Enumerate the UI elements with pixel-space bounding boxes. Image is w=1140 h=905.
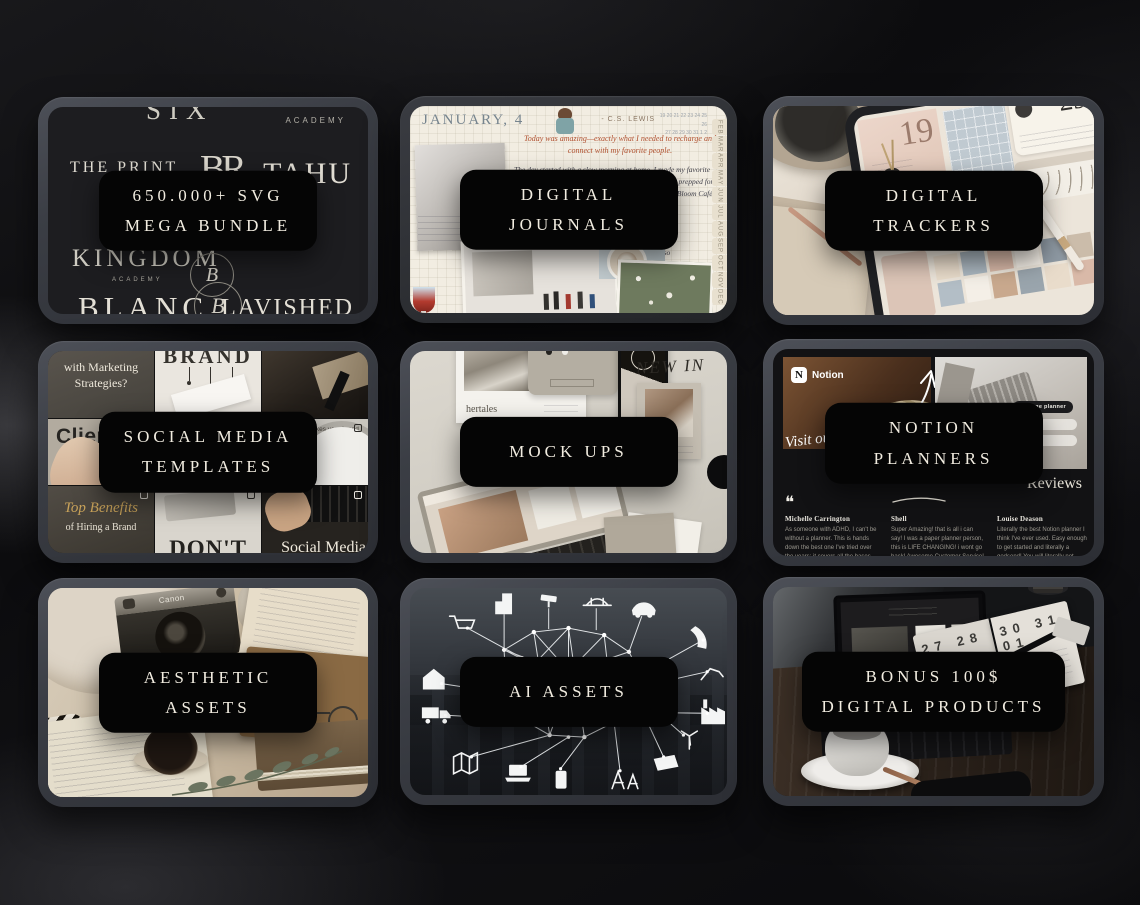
mosaic-tile [960,249,987,276]
camera-shutter-knob [216,588,227,598]
review-card: Michelle Carrington As someone with ADHD… [785,515,879,556]
product-tile-notion-planners: N Notion Visit our Shop 60 page planner … [763,339,1104,566]
mosaic-tile [1017,267,1044,294]
review-text: Literally the best Notion planner I thin… [997,526,1091,556]
journal-photo-wine-glass [413,287,435,313]
journal-figure-body [556,118,574,134]
template-text-dont: DON'T [155,536,261,553]
review-text: As someone with ADHD, I can't be without… [785,526,879,556]
building-icon [495,593,512,614]
card-slot [550,379,594,387]
mindmap-dot [187,381,191,385]
laptop-icon [509,765,527,776]
category-banner: AI ASSETS [460,656,678,726]
webpage-product-card [528,481,576,529]
tracker-cover-number: 19 [897,111,937,154]
review-card: Shell Super Amazing! that is all i can s… [891,515,985,556]
review-text: Super Amazing! that is all i can say! I … [891,526,985,556]
product-tile-digital-trackers: 19 29 [763,96,1104,325]
product-tile-social-media-templates: with Marketing Strategies? BRAND Client … [38,341,378,563]
template-text-brand: BRAND [155,351,261,369]
notion-logo-icon: N [791,367,807,383]
pen-prop [562,351,568,355]
month-tab: MAR [712,136,727,152]
lens-prop [707,455,727,489]
gallery-figure [544,294,550,310]
category-label-line: MOCK UPS [482,437,656,467]
journal-dates-row: 19 20 21 22 23 24 25 26 [655,112,707,129]
gallery-stairs [472,250,533,296]
gallery-figure-red [566,294,572,309]
month-tab-label: OCT [717,255,723,271]
category-label-line: AI ASSETS [482,676,656,706]
journal-intro-text: Today was amazing—exactly what I needed … [522,133,718,158]
digital-products-promo-grid: SIX ACADEMY THE PRINT Avenue BR TAHU KIN… [0,0,1140,905]
product-tile-digital-journals: JANUARY, 4 - C.S. LEWIS 19 20 21 22 23 2… [400,96,737,323]
template-text: with Marketing Strategies? [48,351,154,391]
date-widget: 29 [1007,106,1094,156]
eucalyptus-sprig [168,737,348,797]
category-label-line: DIGITAL PRODUCTS [822,692,1046,722]
solar-panel-icon [654,755,679,771]
category-banner: DIGITAL JOURNALS [460,169,678,250]
category-label-line: TRACKERS [845,211,1023,241]
car-icon [632,602,656,615]
month-tab-label: FEB [717,120,723,135]
category-label-line: JOURNALS [480,210,658,240]
journal-quote-author: - C.S. LEWIS [601,116,655,123]
month-tab-label: NOV [717,272,723,288]
template-cell-marketing: with Marketing Strategies? [48,351,154,418]
date-widget-day: 29 [1056,106,1089,119]
category-banner: MOCK UPS [460,417,678,487]
month-tab: JUL [712,204,727,220]
category-banner: BONUS 100$ DIGITAL PRODUCTS [802,651,1066,732]
reviewer-name: Michelle Carrington [785,515,879,523]
abstract-wave-art [464,351,534,391]
category-label-line: MEGA BUNDLE [119,211,297,241]
power-towers-icon [612,772,638,789]
factory-icon [701,707,725,724]
print-caption-lines [544,405,578,415]
category-label-line: PLANNERS [845,443,1023,473]
category-label-line: SOCIAL MEDIA [119,422,297,452]
category-label-line: DIGITAL [480,179,658,209]
mosaic-tile [991,271,1018,298]
pen-prop [546,351,552,355]
template-cell-brand: BRAND [155,351,261,418]
category-label-line: NOTION [845,413,1023,443]
journal-month-tabs: FEB MAR APR MAY JUN JUL AUG SEP OCT NOV … [712,119,727,306]
month-tab: FEB [712,119,727,135]
underline-swash [891,497,947,505]
journal-photo-flowers [616,259,714,313]
month-tab-label: SEP [717,238,723,253]
card-holder-mockup [528,351,618,395]
category-banner: NOTION PLANNERS [825,403,1043,484]
product-tile-ai-assets: AI ASSETS [400,578,737,805]
laptop-base [505,778,531,782]
gallery-figure [577,292,583,309]
laptop-prop [164,489,236,522]
phone-icon [556,771,567,789]
post-icon [247,491,255,499]
bridge-icon [583,598,611,605]
month-tab: MAY [712,170,727,186]
product-tile-svg-mega-bundle: SIX ACADEMY THE PRINT Avenue BR TAHU KIN… [38,97,378,324]
month-tab-label: JUL [717,205,723,219]
logo-six: SIX [146,107,214,126]
candle-glass [1033,587,1063,593]
month-tab-label: DEC [717,289,723,305]
template-cell-top-benefits: Top Benefits of Hiring a Brand [48,486,154,553]
date-widget-rows [1019,124,1094,149]
mindmap-line [189,367,190,381]
post-icon [140,491,148,499]
review-card: Louise Deason Literally the best Notion … [997,515,1091,556]
template-text-social: Social Media [281,539,366,553]
logo-kingdom-sub: ACADEMY [112,277,163,283]
gallery-figure-blue [590,294,595,308]
month-tab-label: MAR [717,136,723,152]
category-banner: DIGITAL TRACKERS [825,170,1043,251]
month-tab: JUN [712,187,727,203]
post-icon [354,424,362,432]
month-tab: OCT [712,255,727,271]
template-cell-dont: DON'T [155,486,261,553]
brand-wordmark: hertales [466,404,497,415]
poster-new-in-text: NEW IN [635,355,705,379]
logo-blanc: BLANC [78,290,208,314]
product-tile-aesthetic-assets: Canon [38,578,378,807]
car-wheel [647,613,652,618]
factory-chimney [703,699,707,708]
template-cell-social-media: Social Media [262,486,368,553]
month-tab-label: JUN [717,188,723,203]
category-banner: SOCIAL MEDIA TEMPLATES [99,412,317,493]
house-icon [423,669,445,690]
logo-academy: ACADEMY [285,116,346,125]
category-label-line: AESTHETIC [119,662,297,692]
template-cell-heels [262,351,368,418]
glasses-bridge [316,712,330,714]
quote-icon: ❝ [785,493,794,513]
photo-card [881,250,937,315]
swatch-card [604,513,677,553]
robot-arm-icon [701,669,723,680]
cart-icon [450,616,475,628]
category-label-line: BONUS 100$ [822,661,1046,691]
webpage-logo-lines [889,607,937,619]
month-tab: AUG [712,221,727,237]
truck-wheel [425,719,430,724]
template-text-benefits-sub: of Hiring a Brand [48,522,154,533]
cctv-icon [540,594,557,607]
category-banner: 650.000+ SVG MEGA BUNDLE [99,170,317,251]
category-label-line: DIGITAL [845,180,1023,210]
camera-dial [122,598,135,609]
month-tab: APR [712,153,727,169]
category-label-line: ASSETS [119,693,297,723]
camera-brand-text: Canon [158,593,185,605]
product-tile-bonus-digital-products: 27 28 29 30 31 01 BONUS 100$ [763,577,1104,806]
wine-glass-stem [421,311,426,313]
notion-brand-text: Notion [812,370,844,381]
car-wheel [635,613,640,618]
month-tab-label: AUG [717,221,723,237]
mosaic-tile [937,280,964,307]
post-icon [354,491,362,499]
category-banner: AESTHETIC ASSETS [99,652,317,733]
truck-wheel [442,719,447,724]
month-tab-label: APR [717,153,723,168]
product-tile-mock-ups: hertales NEW IN [400,341,737,563]
reviewer-name: Shell [891,515,985,523]
month-tab: SEP [712,238,727,254]
date-widget-badge [1014,106,1033,119]
template-text-benefits: Top Benefits [48,500,154,517]
reviewer-name: Louise Deason [997,515,1091,523]
category-label-line: TEMPLATES [119,452,297,482]
gallery-figure [553,291,559,309]
month-tab: DEC [712,289,727,305]
mosaic-tile [933,253,960,280]
category-label-line: 650.000+ SVG [119,180,297,210]
month-tab-label: MAY [717,170,723,186]
logo-lavished: LAVISHED [221,295,354,314]
month-tab: NOV [712,272,727,288]
journal-date-header: JANUARY, 4 [422,112,524,129]
mosaic-tile [964,275,991,302]
mosaic-tile [1044,263,1071,290]
